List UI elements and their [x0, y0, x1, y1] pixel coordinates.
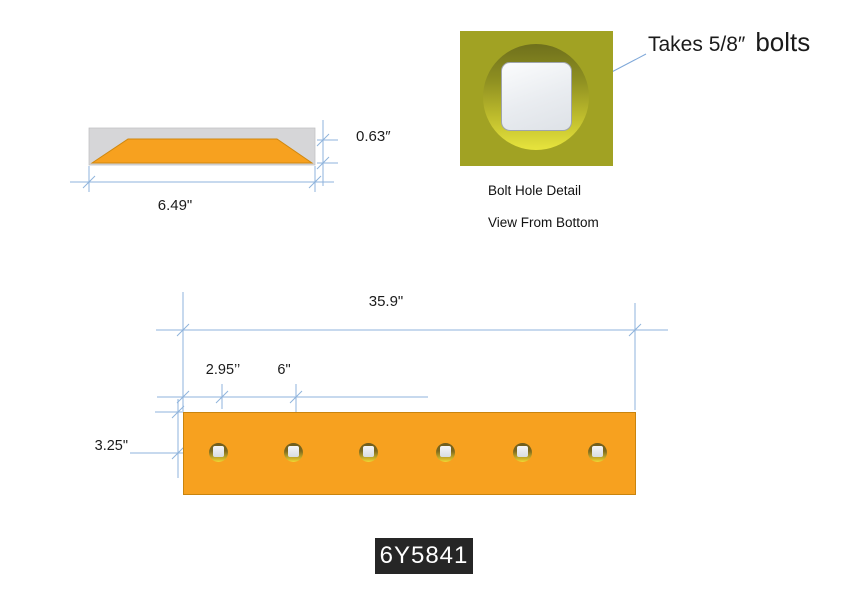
cross-section-thickness-label: 0.63″	[356, 128, 391, 145]
plate-height-label: 3.25"	[64, 438, 128, 454]
part-number-text: 6Y5841	[380, 542, 469, 570]
backing-plate-shape	[89, 128, 315, 165]
bolt-hole-detail-title: Bolt Hole Detail	[488, 183, 581, 198]
cross-section-dimensions	[70, 120, 338, 192]
technical-drawing: 6.49" 0.63″ Takes 5/8″bolts Bolt Hole De…	[0, 0, 849, 600]
edge-to-first-hole-label: 2.95’’	[193, 362, 253, 378]
bolt-hole-square	[517, 446, 528, 457]
cross-section-width-label: 6.49"	[140, 197, 210, 214]
plate-length-label: 35.9"	[346, 293, 426, 310]
bolt-hole-square	[592, 446, 603, 457]
bolt-hole-square	[213, 446, 224, 457]
bolt-hole	[209, 443, 228, 462]
bolt-hole	[284, 443, 303, 462]
bolt-hole-square	[440, 446, 451, 457]
square-bolt-hole	[501, 62, 572, 131]
bolt-size-callout-prefix: Takes 5/8″	[648, 33, 745, 56]
bolt-hole-square	[288, 446, 299, 457]
cross-section-view	[89, 128, 315, 165]
bolt-hole	[436, 443, 455, 462]
bolt-hole-detail-subtitle: View From Bottom	[488, 215, 599, 230]
part-number-tag: 6Y5841	[375, 538, 473, 574]
plate-shape	[183, 412, 636, 495]
bolt-hole	[513, 443, 532, 462]
bolt-hole	[359, 443, 378, 462]
bolt-size-callout: Takes 5/8″bolts	[648, 27, 810, 58]
hole-spacing-label: 6"	[264, 362, 304, 378]
cutting-edge-profile-shape	[92, 139, 312, 163]
bolt-hole	[588, 443, 607, 462]
bolt-size-callout-suffix: bolts	[755, 27, 810, 57]
bolt-hole-square	[363, 446, 374, 457]
